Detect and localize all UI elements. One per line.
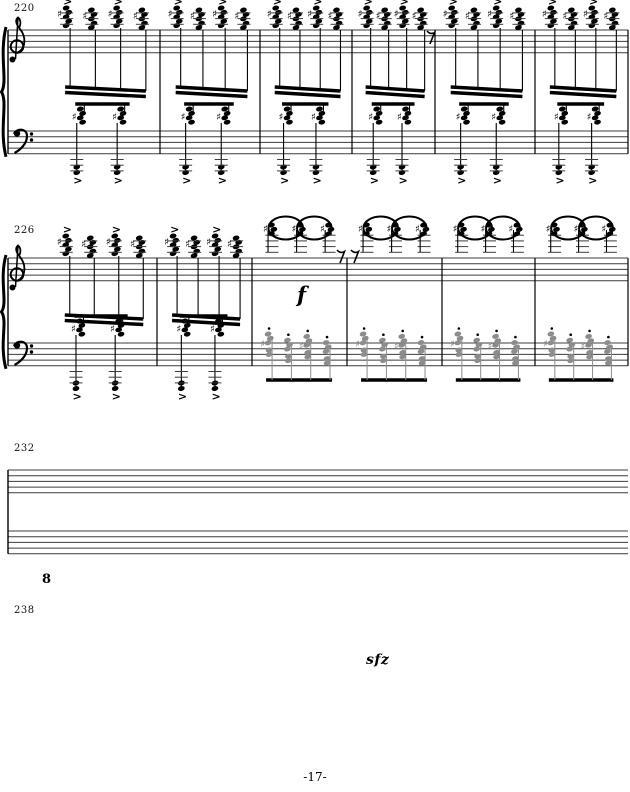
svg-text:>: > — [211, 390, 220, 403]
svg-text:>: > — [182, 174, 191, 187]
svg-text:♯: ♯ — [210, 324, 215, 335]
svg-text:♯: ♯ — [267, 9, 272, 20]
svg-text:♯: ♯ — [376, 11, 381, 22]
svg-text:>: > — [588, 174, 597, 187]
svg-text:>: > — [112, 390, 121, 403]
svg-text:♯: ♯ — [412, 11, 417, 22]
svg-text:♯: ♯ — [206, 237, 211, 248]
svg-text:>: > — [73, 174, 82, 187]
svg-text:♯: ♯ — [112, 112, 117, 123]
svg-text:>: > — [218, 0, 227, 8]
svg-text:>: > — [313, 0, 322, 8]
svg-text:♯: ♯ — [603, 11, 608, 22]
notation-canvas: ♯>♯♯>♯♯>♯>♯>♯♯>♯♯>♯>♯>♯♯>♯♯>♯>♯>♯♯>♯♯>♯>… — [0, 0, 630, 792]
svg-text:>: > — [493, 174, 502, 187]
svg-text:♯: ♯ — [234, 11, 239, 22]
svg-text:>: > — [114, 174, 123, 187]
measure-number-system-1: 220 — [14, 3, 35, 14]
svg-text:♯: ♯ — [216, 112, 221, 123]
svg-text:♯: ♯ — [358, 9, 363, 20]
svg-text:♯: ♯ — [57, 9, 62, 20]
svg-text:♯: ♯ — [554, 112, 559, 123]
svg-text:♯: ♯ — [491, 112, 496, 123]
svg-text:♯: ♯ — [450, 339, 455, 350]
svg-text:♯: ♯ — [299, 341, 304, 352]
svg-text:>: > — [400, 0, 409, 8]
svg-text:♯: ♯ — [164, 237, 169, 248]
svg-text:♯: ♯ — [453, 224, 458, 235]
svg-text:♯: ♯ — [110, 324, 115, 335]
svg-text:♯: ♯ — [542, 9, 547, 20]
svg-text:♯: ♯ — [130, 239, 135, 250]
svg-text:>: > — [218, 174, 227, 187]
svg-text:♯: ♯ — [320, 224, 325, 235]
svg-text:♯: ♯ — [190, 11, 195, 22]
measure-number-system-3: 232 — [14, 443, 35, 454]
svg-text:>: > — [312, 174, 321, 187]
svg-text:♯: ♯ — [307, 9, 312, 20]
svg-text:>: > — [555, 174, 564, 187]
svg-text:♯: ♯ — [509, 11, 514, 22]
svg-text:♯: ♯ — [185, 239, 190, 250]
svg-text:>: > — [114, 0, 123, 8]
svg-text:♯: ♯ — [562, 11, 567, 22]
svg-text:♯: ♯ — [71, 324, 76, 335]
svg-text:>: > — [72, 390, 81, 403]
svg-text:♯: ♯ — [263, 224, 268, 235]
svg-text:♯: ♯ — [546, 224, 551, 235]
svg-text:>: > — [589, 0, 598, 8]
svg-text:>: > — [273, 0, 282, 8]
svg-text:♯: ♯ — [465, 11, 470, 22]
svg-text:>: > — [399, 174, 408, 187]
svg-text:>: > — [63, 223, 72, 236]
svg-text:>: > — [457, 174, 466, 187]
svg-text:♯: ♯ — [394, 9, 399, 20]
svg-text:♯: ♯ — [279, 112, 284, 123]
svg-text:♯: ♯ — [82, 11, 87, 22]
svg-text:>: > — [178, 390, 187, 403]
svg-text:>: > — [170, 223, 179, 236]
svg-text:♯: ♯ — [133, 11, 138, 22]
svg-text:♯: ♯ — [397, 112, 402, 123]
dynamic-sforzando: sfz — [366, 652, 389, 668]
svg-text:>: > — [112, 223, 121, 236]
svg-text:♯: ♯ — [481, 224, 486, 235]
svg-text:>: > — [63, 0, 72, 8]
svg-text:>: > — [370, 174, 379, 187]
svg-text:>: > — [493, 0, 502, 8]
measure-number-system-2: 226 — [14, 225, 35, 236]
svg-text:♯: ♯ — [327, 11, 332, 22]
svg-text:♯: ♯ — [574, 224, 579, 235]
svg-text:♯: ♯ — [311, 112, 316, 123]
svg-text:>: > — [174, 0, 183, 8]
svg-text:♯: ♯ — [456, 112, 461, 123]
svg-text:>: > — [212, 223, 221, 236]
svg-text:♯: ♯ — [287, 11, 292, 22]
svg-text:♯: ♯ — [415, 224, 420, 235]
svg-text:♯: ♯ — [227, 239, 232, 250]
svg-text:♯: ♯ — [181, 112, 186, 123]
svg-text:♯: ♯ — [543, 339, 548, 350]
svg-text:♯: ♯ — [581, 341, 586, 352]
svg-text:♯: ♯ — [212, 9, 217, 20]
ottava-label: 8 — [42, 572, 51, 587]
svg-text:♯: ♯ — [601, 224, 606, 235]
sheet-music-page: ♯>♯♯>♯♯>♯>♯>♯♯>♯♯>♯>♯>♯♯>♯♯>♯>♯>♯♯>♯♯>♯>… — [0, 0, 630, 792]
svg-text:♯: ♯ — [587, 112, 592, 123]
svg-text:♯: ♯ — [443, 9, 448, 20]
svg-text:♯: ♯ — [176, 324, 181, 335]
svg-text:♯: ♯ — [260, 339, 265, 350]
page-number: -17- — [0, 770, 630, 784]
dynamic-forte: f — [297, 282, 306, 307]
svg-text:♯: ♯ — [355, 339, 360, 350]
measure-number-system-4: 238 — [14, 605, 35, 616]
svg-text:♯: ♯ — [292, 224, 297, 235]
svg-text:♯: ♯ — [387, 224, 392, 235]
svg-text:♯: ♯ — [368, 112, 373, 123]
svg-text:♯: ♯ — [394, 341, 399, 352]
svg-text:♯: ♯ — [81, 239, 86, 250]
svg-text:♯: ♯ — [108, 9, 113, 20]
svg-text:♯: ♯ — [72, 112, 77, 123]
svg-text:♯: ♯ — [57, 237, 62, 248]
svg-text:♯: ♯ — [488, 341, 493, 352]
svg-text:>: > — [280, 174, 289, 187]
svg-text:♯: ♯ — [358, 224, 363, 235]
svg-text:>: > — [364, 0, 373, 8]
svg-text:♯: ♯ — [487, 9, 492, 20]
svg-text:♯: ♯ — [508, 224, 513, 235]
svg-text:>: > — [548, 0, 557, 8]
svg-text:♯: ♯ — [106, 237, 111, 248]
svg-text:♯: ♯ — [168, 9, 173, 20]
svg-text:>: > — [449, 0, 458, 8]
svg-text:♯: ♯ — [583, 9, 588, 20]
